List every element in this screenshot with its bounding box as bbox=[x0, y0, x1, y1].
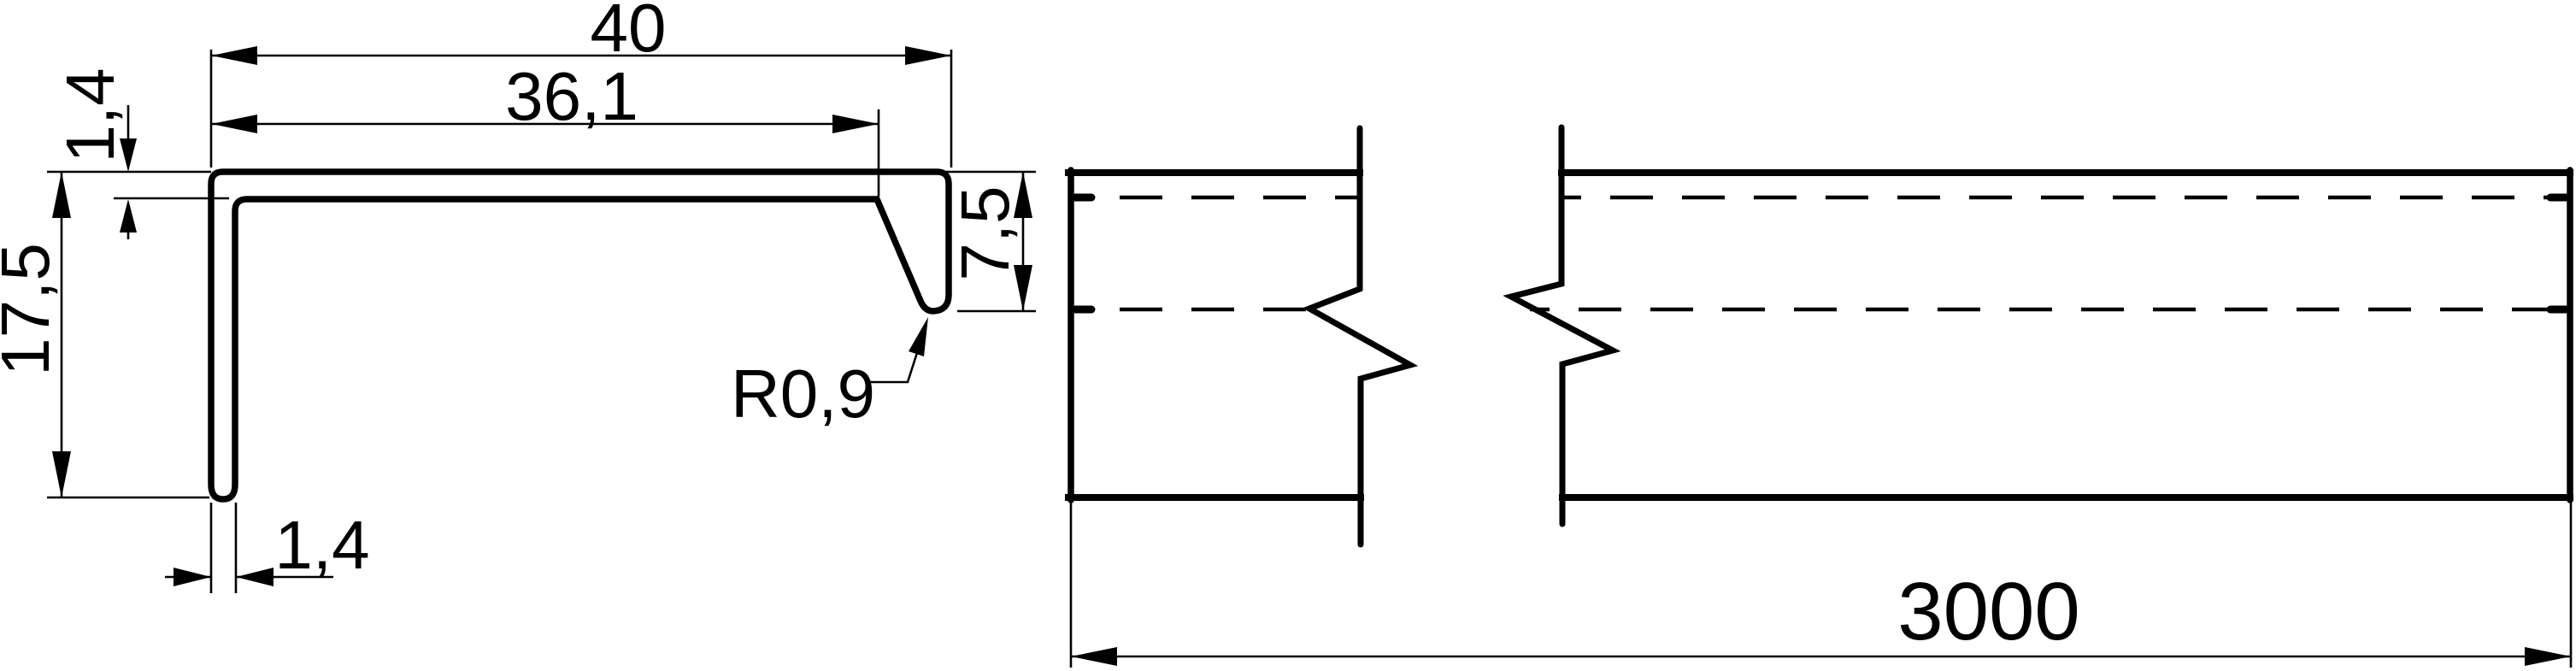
dim-leg-thickness-label: 1,4 bbox=[274, 507, 369, 583]
dim-overall-height-label: 17,5 bbox=[0, 243, 63, 376]
cross-section-view: 40 36,1 1,4 17,5 bbox=[0, 0, 1036, 593]
side-view: 3000 bbox=[1068, 127, 2571, 668]
dim-corner-radius: R0,9 bbox=[731, 317, 928, 432]
dim-leg-thickness: 1,4 bbox=[165, 503, 370, 593]
arrowhead-up bbox=[120, 199, 137, 232]
arrowhead bbox=[909, 317, 928, 356]
arrowhead-right bbox=[2525, 647, 2571, 666]
arrowhead-right bbox=[832, 115, 879, 133]
break-line-left bbox=[1309, 128, 1410, 544]
arrowhead-right bbox=[905, 46, 951, 65]
dim-inner-width-label: 36,1 bbox=[505, 58, 638, 134]
dim-overall-height: 17,5 bbox=[0, 172, 209, 497]
dim-flange-thickness-label: 1,4 bbox=[52, 68, 128, 162]
arrowhead-down bbox=[52, 451, 71, 497]
dim-flange-thickness: 1,4 bbox=[47, 68, 229, 239]
arrowhead-left bbox=[1071, 647, 1117, 666]
dim-lip-height-label: 7,5 bbox=[947, 185, 1023, 280]
arrowhead-left bbox=[236, 568, 273, 586]
dim-overall-width-label: 40 bbox=[591, 0, 667, 66]
dim-length: 3000 bbox=[1071, 503, 2571, 668]
dim-length-label: 3000 bbox=[1897, 566, 2080, 657]
arrowhead-left bbox=[211, 115, 257, 133]
dim-inner-width: 36,1 bbox=[211, 58, 879, 197]
dim-lip-height: 7,5 bbox=[938, 172, 1036, 311]
arrowhead-right bbox=[173, 568, 211, 586]
dim-corner-radius-label: R0,9 bbox=[731, 356, 875, 432]
arrowhead-left bbox=[211, 46, 257, 65]
break-line-right bbox=[1511, 127, 1613, 524]
arrowhead-up bbox=[52, 172, 71, 218]
technical-drawing: 40 36,1 1,4 17,5 bbox=[0, 0, 2576, 671]
profile-outline bbox=[211, 172, 949, 499]
